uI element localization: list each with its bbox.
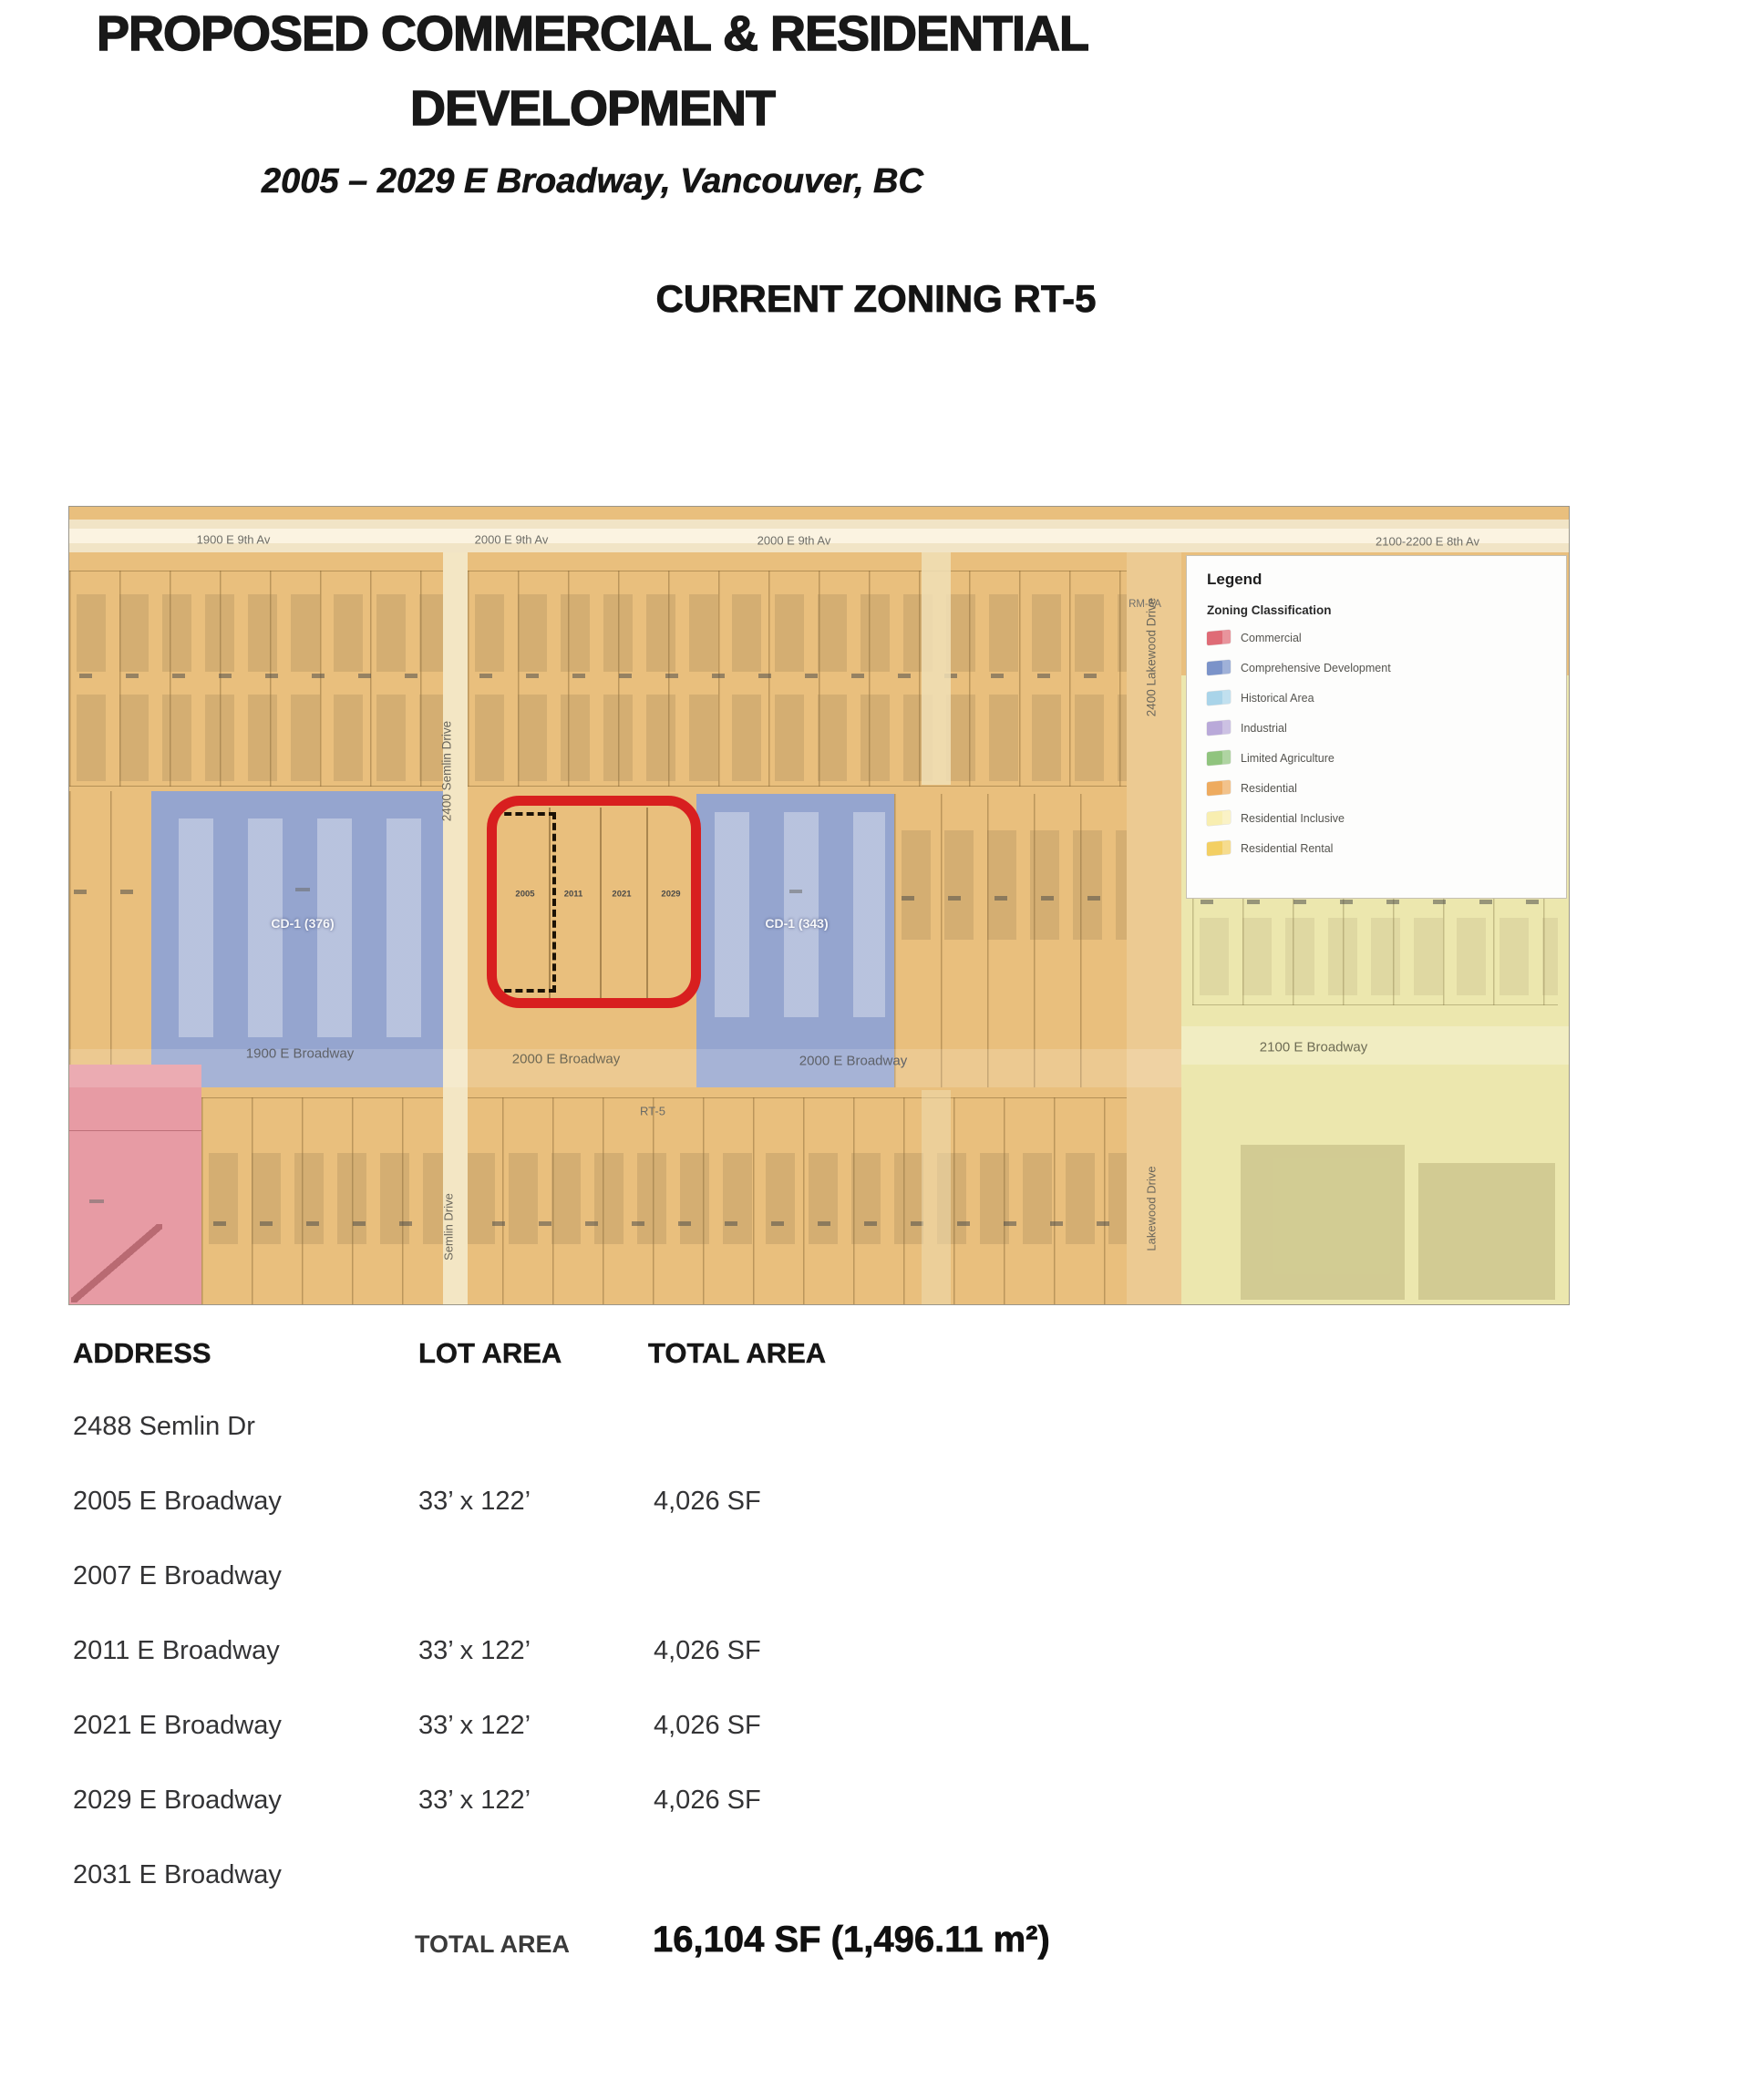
subject-site-highlight (487, 796, 701, 1008)
residential-rental-swatch-icon (1207, 840, 1231, 856)
commercial-zone-pink (69, 1065, 201, 1304)
building-footprints (201, 1153, 1127, 1244)
row-lot-area: 33’ x 122’ (418, 1711, 531, 1741)
row-address: 2005 E Broadway (73, 1487, 282, 1517)
large-building-footprint (1241, 1145, 1405, 1300)
legend-item-label: Historical Area (1241, 692, 1314, 705)
legend-item: Historical Area (1207, 683, 1566, 713)
total-area-label: TOTAL AREA (415, 1930, 570, 1959)
legend-item-label: Commercial (1241, 632, 1302, 644)
legend-item-label: Industrial (1241, 722, 1287, 735)
legend-item: Limited Agriculture (1207, 743, 1566, 773)
large-building-footprint (1418, 1163, 1555, 1300)
lot-numbers-row (899, 896, 1122, 901)
lot-numbers-row (211, 1221, 1118, 1226)
cd1-west-label: CD-1 (376) (271, 916, 334, 931)
mid-block-west-column (69, 791, 151, 1065)
row-total-area: 4,026 SF (654, 1487, 761, 1517)
column-header-lot-area: LOT AREA (418, 1337, 562, 1370)
legend-item-label: Residential (1241, 782, 1297, 795)
row-address: 2007 E Broadway (73, 1561, 282, 1591)
building-footprints (894, 830, 1127, 940)
legend-item: Residential Rental (1207, 833, 1566, 863)
rt5-zone-label: RT-5 (640, 1105, 665, 1118)
cd1-east-label: CD-1 (343) (765, 916, 828, 931)
address-subtitle: 2005 – 2029 E Broadway, Vancouver, BC (0, 162, 1185, 201)
comprehensive-development-swatch-icon (1207, 660, 1231, 675)
pink-diagonal-line (71, 1224, 162, 1302)
historical-area-swatch-icon (1207, 690, 1231, 705)
broadway-street-band (69, 1049, 1181, 1087)
row-lot-area: 33’ x 122’ (418, 1487, 531, 1517)
lot-numbers-row (71, 890, 148, 894)
street-label-e9th: 1900 E 9th Av (197, 533, 271, 547)
legend-item-label: Residential Rental (1241, 842, 1333, 855)
street-label-broadway: 1900 E Broadway (246, 1046, 354, 1062)
legend-item: Industrial (1207, 713, 1566, 743)
lot-number-mark (295, 888, 310, 891)
building-footprints (69, 695, 443, 781)
building-footprints (69, 594, 443, 672)
lot-number-mark (89, 1199, 104, 1203)
residential-inclusive-swatch-icon (1207, 810, 1231, 826)
cd1-zone-east (696, 794, 894, 1087)
commercial-swatch-icon (1207, 630, 1231, 645)
subject-lot-number: 2005 (515, 890, 534, 900)
title-line-1: PROPOSED COMMERCIAL & RESIDENTIAL (0, 9, 1185, 58)
semlin-drive-band (443, 552, 468, 1304)
street-label-e9th: 2000 E 9th Av (475, 533, 549, 547)
inclusive-lots (1192, 890, 1558, 1005)
industrial-swatch-icon (1207, 720, 1231, 736)
street-label-e8th: 2100-2200 E 8th Av (1376, 535, 1479, 549)
building-footprints (468, 695, 1127, 781)
legend-subtitle: Zoning Classification (1207, 603, 1566, 617)
column-header-total-area: TOTAL AREA (648, 1337, 826, 1370)
zoning-section-heading: CURRENT ZONING RT-5 (0, 277, 1752, 321)
upper-block-west (69, 571, 443, 787)
building-footprints (468, 594, 1127, 672)
street-label-semlin-lower: Semlin Drive (442, 1193, 456, 1261)
lot-numbers-row (77, 674, 436, 678)
lot-numbers-row (1198, 900, 1553, 904)
cd1-zone-west (151, 791, 445, 1087)
row-address: 2488 Semlin Dr (73, 1412, 255, 1442)
row-address: 2031 E Broadway (73, 1860, 282, 1890)
legend-item: Commercial (1207, 623, 1566, 653)
cd1-east-buildings (706, 812, 885, 1017)
map-legend: Legend Zoning Classification Commercial … (1186, 555, 1567, 899)
street-label-broadway: 2000 E Broadway (512, 1052, 620, 1067)
broadway-street-band-east (1181, 1026, 1569, 1065)
street-label-broadway: 2100 E Broadway (1260, 1040, 1367, 1055)
legend-title: Legend (1207, 571, 1566, 589)
subject-lot-number: 2029 (661, 890, 680, 900)
lower-block (201, 1097, 1127, 1305)
row-total-area: 4,026 SF (654, 1786, 761, 1816)
legend-item-label: Residential Inclusive (1241, 812, 1345, 825)
legend-item-label: Comprehensive Development (1241, 662, 1391, 674)
lane-band (922, 552, 951, 785)
lot-numbers-row (477, 674, 1115, 678)
zoning-map: 2005 2011 2021 2029 CD-1 (376) CD-1 (343… (68, 506, 1570, 1305)
street-label-e9th: 2000 E 9th Av (757, 534, 831, 548)
lot-number-mark (789, 890, 802, 893)
column-header-address: ADDRESS (73, 1337, 211, 1370)
pink-lot-line (69, 1130, 201, 1131)
total-area-value: 16,104 SF (1,496.11 m²) (653, 1920, 1050, 1961)
row-total-area: 4,026 SF (654, 1711, 761, 1741)
row-total-area: 4,026 SF (654, 1636, 761, 1666)
row-address: 2021 E Broadway (73, 1711, 282, 1741)
legend-item-label: Limited Agriculture (1241, 752, 1335, 765)
street-label-broadway: 2000 E Broadway (799, 1054, 907, 1069)
street-label-lakewood-upper: 2400 Lakewood Drive (1145, 598, 1159, 717)
street-label-lakewood-lower: Lakewood Drive (1145, 1166, 1159, 1251)
row-address: 2011 E Broadway (73, 1636, 280, 1666)
page-title: PROPOSED COMMERCIAL & RESIDENTIAL DEVELO… (0, 9, 1185, 133)
lane-band-lower (922, 1090, 951, 1304)
mid-block-east-lots (894, 794, 1127, 1087)
title-line-2: DEVELOPMENT (0, 84, 1185, 133)
building-footprints (1192, 918, 1558, 995)
upper-block-central (468, 571, 1127, 787)
legend-item: Comprehensive Development (1207, 653, 1566, 683)
row-lot-area: 33’ x 122’ (418, 1636, 531, 1666)
row-lot-area: 33’ x 122’ (418, 1786, 531, 1816)
limited-agriculture-swatch-icon (1207, 750, 1231, 766)
residential-swatch-icon (1207, 780, 1231, 796)
legend-item: Residential Inclusive (1207, 803, 1566, 833)
row-address: 2029 E Broadway (73, 1786, 282, 1816)
legend-item: Residential (1207, 773, 1566, 803)
subject-lot-number: 2011 (564, 890, 583, 900)
street-label-semlin-upper: 2400 Semlin Drive (440, 721, 454, 821)
subject-lot-number: 2021 (612, 890, 631, 900)
